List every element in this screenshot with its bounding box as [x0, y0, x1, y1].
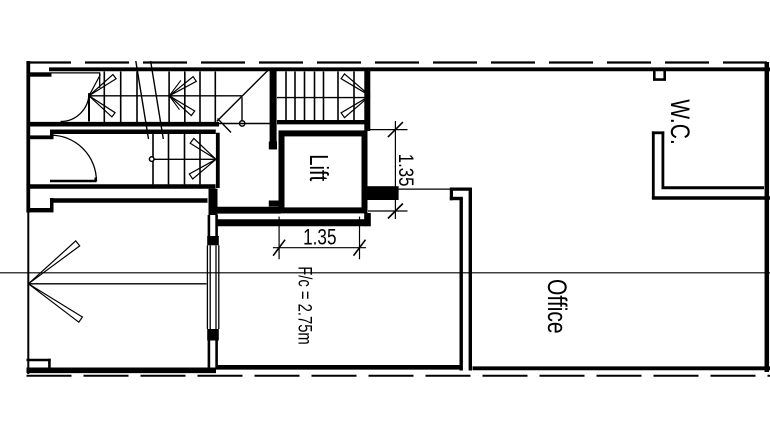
svg-text:W.C.: W.C.: [664, 99, 694, 145]
svg-text:1.35: 1.35: [303, 226, 336, 251]
svg-text:Lift: Lift: [304, 154, 333, 181]
svg-text:Office: Office: [541, 279, 571, 334]
svg-text:1.35: 1.35: [393, 154, 416, 187]
svg-text:F/c = 2.75m: F/c = 2.75m: [294, 266, 315, 345]
